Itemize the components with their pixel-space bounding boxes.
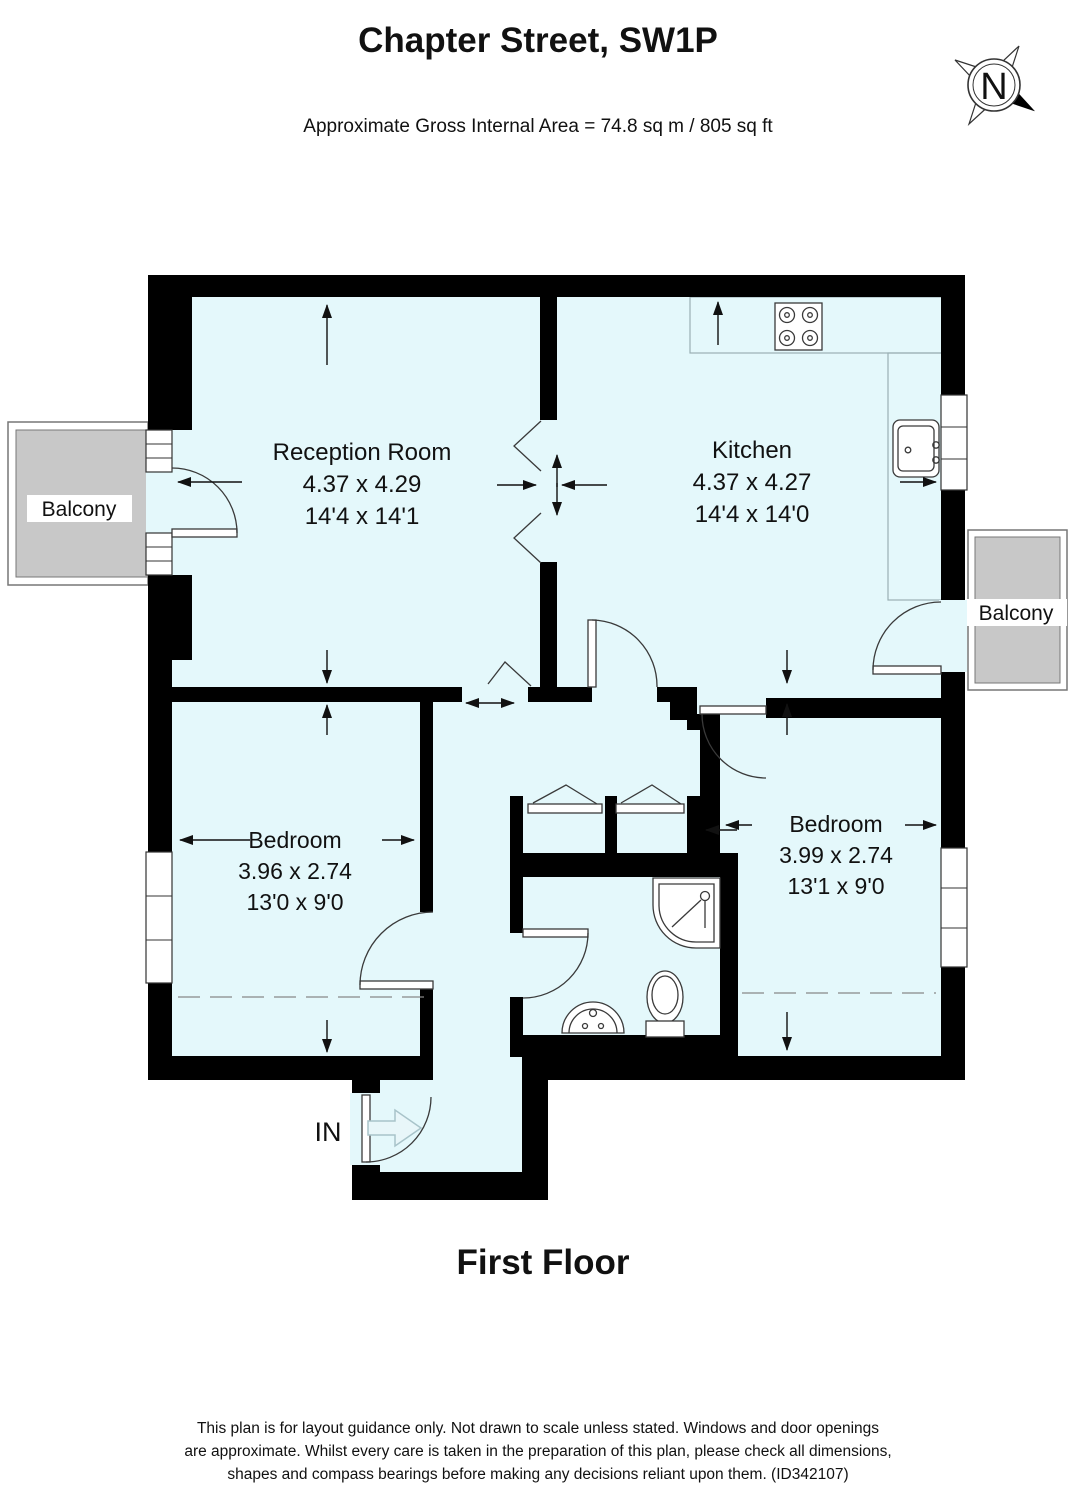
window-bedroom-left	[146, 852, 172, 983]
disclaimer-line-3: shapes and compass bearings before makin…	[227, 1466, 848, 1483]
toilet-icon	[646, 971, 684, 1037]
label-bedroom-left: Bedroom 3.96 x 2.74 13'0 x 9'0	[238, 827, 352, 915]
compass-icon: N	[955, 46, 1033, 124]
balcony-right-door-gap	[939, 600, 967, 672]
reception-dim-metric: 4.37 x 4.29	[303, 471, 422, 498]
window-kitchen	[941, 395, 967, 490]
floorplan-page: Chapter Street, SW1P Approximate Gross I…	[0, 0, 1076, 1500]
balcony-left: Balcony	[8, 422, 148, 585]
compass-north-label: N	[980, 66, 1007, 108]
bedroom-left-name: Bedroom	[248, 827, 341, 853]
header: Chapter Street, SW1P Approximate Gross I…	[303, 21, 773, 137]
sink-icon	[893, 420, 939, 477]
reception-dim-imperial: 14'4 x 14'1	[305, 503, 420, 530]
balcony-right-label: Balcony	[979, 602, 1054, 625]
window-reception-lower	[146, 533, 172, 575]
bedroom-right-dim-metric: 3.99 x 2.74	[779, 842, 893, 868]
kitchen-dim-imperial: 14'4 x 14'0	[695, 501, 810, 528]
balcony-right: Balcony	[967, 530, 1067, 690]
window-bedroom-right	[941, 848, 967, 967]
window-reception-upper	[146, 430, 172, 472]
bedroom-left-dim-imperial: 13'0 x 9'0	[246, 889, 343, 915]
label-bedroom-right: Bedroom 3.99 x 2.74 13'1 x 9'0	[779, 811, 893, 899]
reception-name: Reception Room	[273, 439, 452, 466]
floor-label: First Floor	[456, 1243, 629, 1282]
disclaimer-line-2: are approximate. Whilst every care is ta…	[184, 1443, 891, 1460]
disclaimer-line-1: This plan is for layout guidance only. N…	[197, 1420, 879, 1437]
bedroom-right-name: Bedroom	[789, 811, 882, 837]
floor-plan: Balcony Balcony	[8, 275, 1067, 1200]
balcony-left-label: Balcony	[42, 498, 117, 521]
kitchen-name: Kitchen	[712, 437, 792, 464]
hob-icon	[775, 303, 822, 350]
bedroom-right-dim-imperial: 13'1 x 9'0	[787, 873, 884, 899]
kitchen-dim-metric: 4.37 x 4.27	[693, 469, 812, 496]
balcony-left-door-gap	[146, 472, 174, 533]
area-subtitle: Approximate Gross Internal Area = 74.8 s…	[303, 116, 773, 137]
bedroom-left-dim-metric: 3.96 x 2.74	[238, 858, 352, 884]
disclaimer: This plan is for layout guidance only. N…	[184, 1420, 891, 1483]
cupboard-left-front	[528, 804, 602, 813]
entrance-in-label: IN	[315, 1117, 342, 1147]
page-title: Chapter Street, SW1P	[358, 21, 718, 60]
cupboard-right-front	[616, 804, 684, 813]
